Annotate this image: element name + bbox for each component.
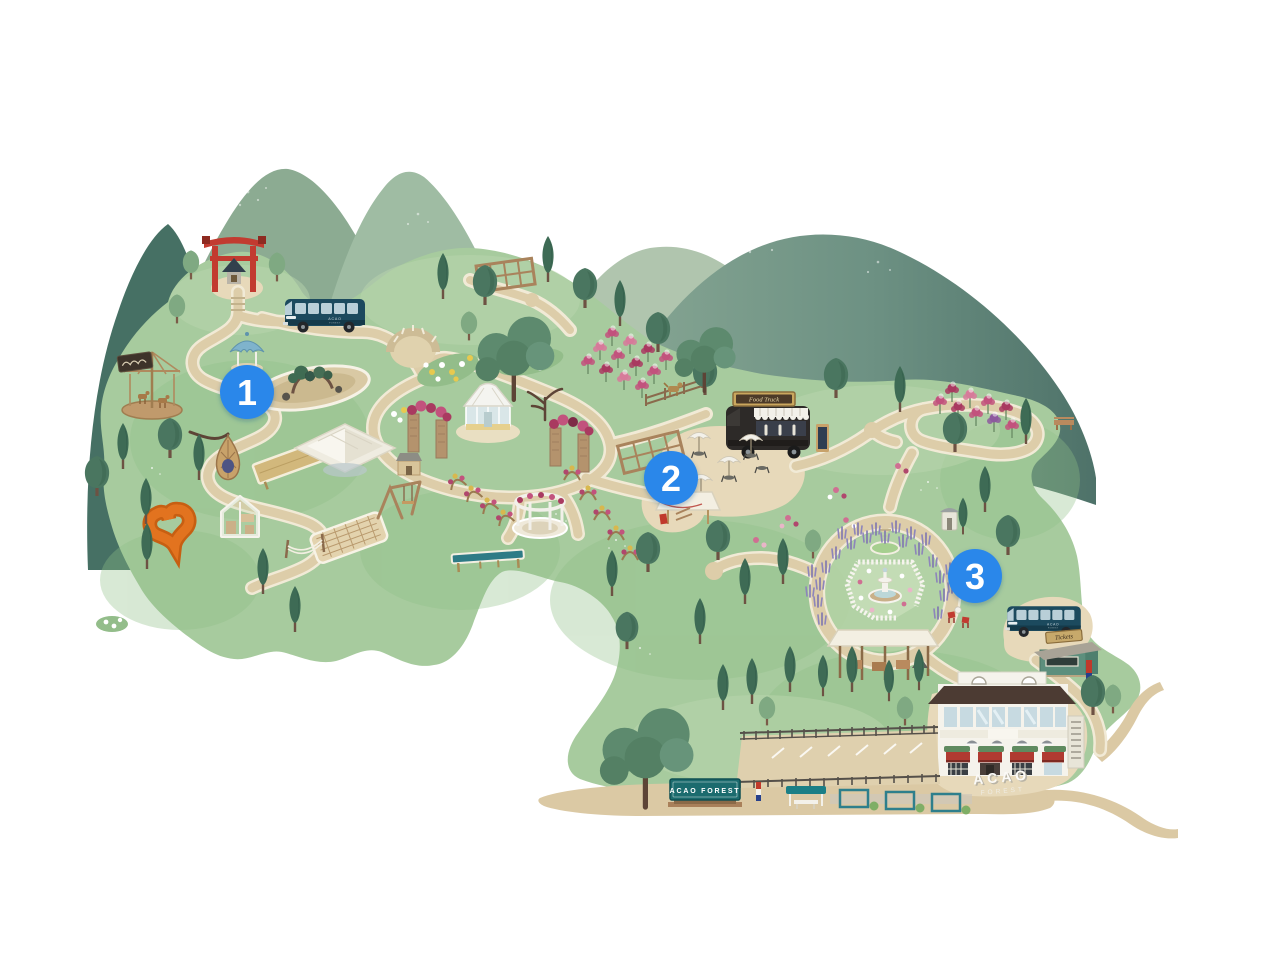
marker-1-number: 1: [237, 372, 257, 413]
marker-3[interactable]: 3: [948, 549, 1002, 603]
acao-forest-map: ACAO FOREST: [0, 0, 1280, 960]
svg-text:FOREST: FOREST: [1048, 628, 1059, 630]
marker-3-number: 3: [965, 556, 985, 597]
flower-bed-southwest: [96, 616, 128, 632]
road-sweep-lower: [1046, 790, 1178, 839]
building-ground-lettering: ACAO ACAO FOREST: [972, 766, 1033, 797]
rest-hut: [940, 508, 959, 530]
svg-text:FOREST: FOREST: [329, 322, 341, 324]
food-truck-sign-label: Food Truck: [748, 397, 779, 404]
bus-brand: ACAO: [328, 317, 341, 321]
marker-2-number: 2: [661, 458, 681, 499]
upper-windows: [944, 707, 1066, 727]
svg-text:ACAO: ACAO: [1047, 623, 1059, 627]
map-illustration: ACAO FOREST: [0, 0, 1280, 960]
stair-tower: [1068, 716, 1084, 768]
food-truck-sign: Food Truck: [733, 392, 795, 406]
main-building: [928, 672, 1084, 776]
marker-1[interactable]: 1: [220, 365, 274, 419]
marker-2[interactable]: 2: [644, 451, 698, 505]
entrance-sign-label: ACAO FOREST: [670, 788, 741, 795]
garden-shed: [396, 453, 422, 475]
entrance-sign: ACAO FOREST: [668, 779, 742, 807]
menu-board: [816, 424, 829, 452]
bollard-striped: [756, 782, 761, 801]
